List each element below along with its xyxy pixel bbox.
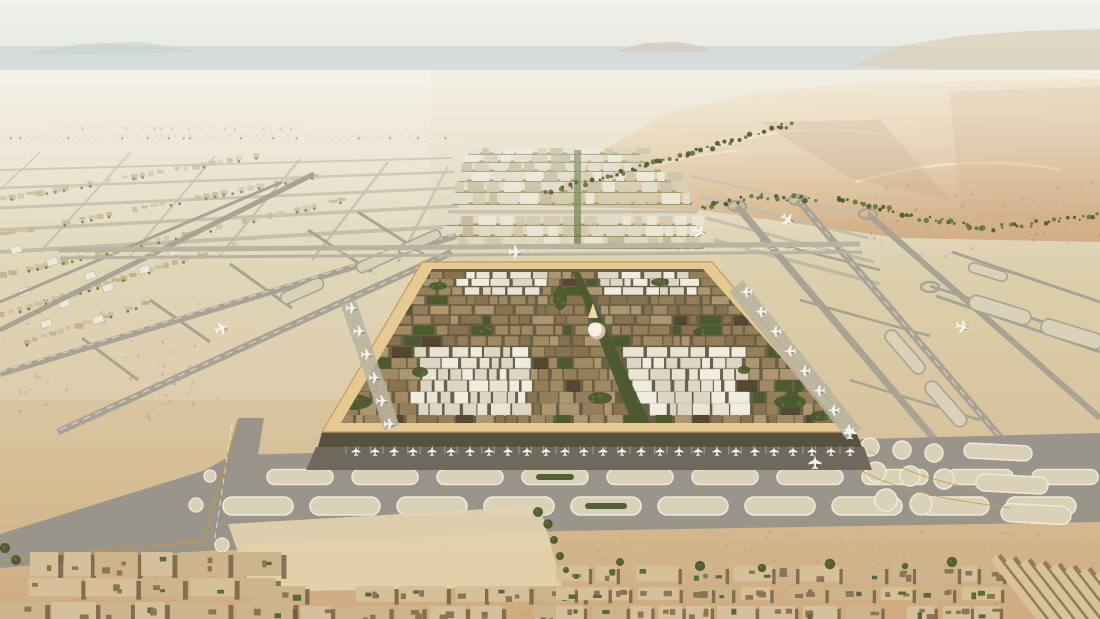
dome-highlight xyxy=(588,323,602,337)
airport-aerial-render xyxy=(0,0,1100,619)
render-canvas xyxy=(0,0,1100,619)
atmospheric-haze-overlay xyxy=(0,70,1100,270)
terminal-facade xyxy=(318,432,862,447)
gate-apron xyxy=(306,447,872,470)
